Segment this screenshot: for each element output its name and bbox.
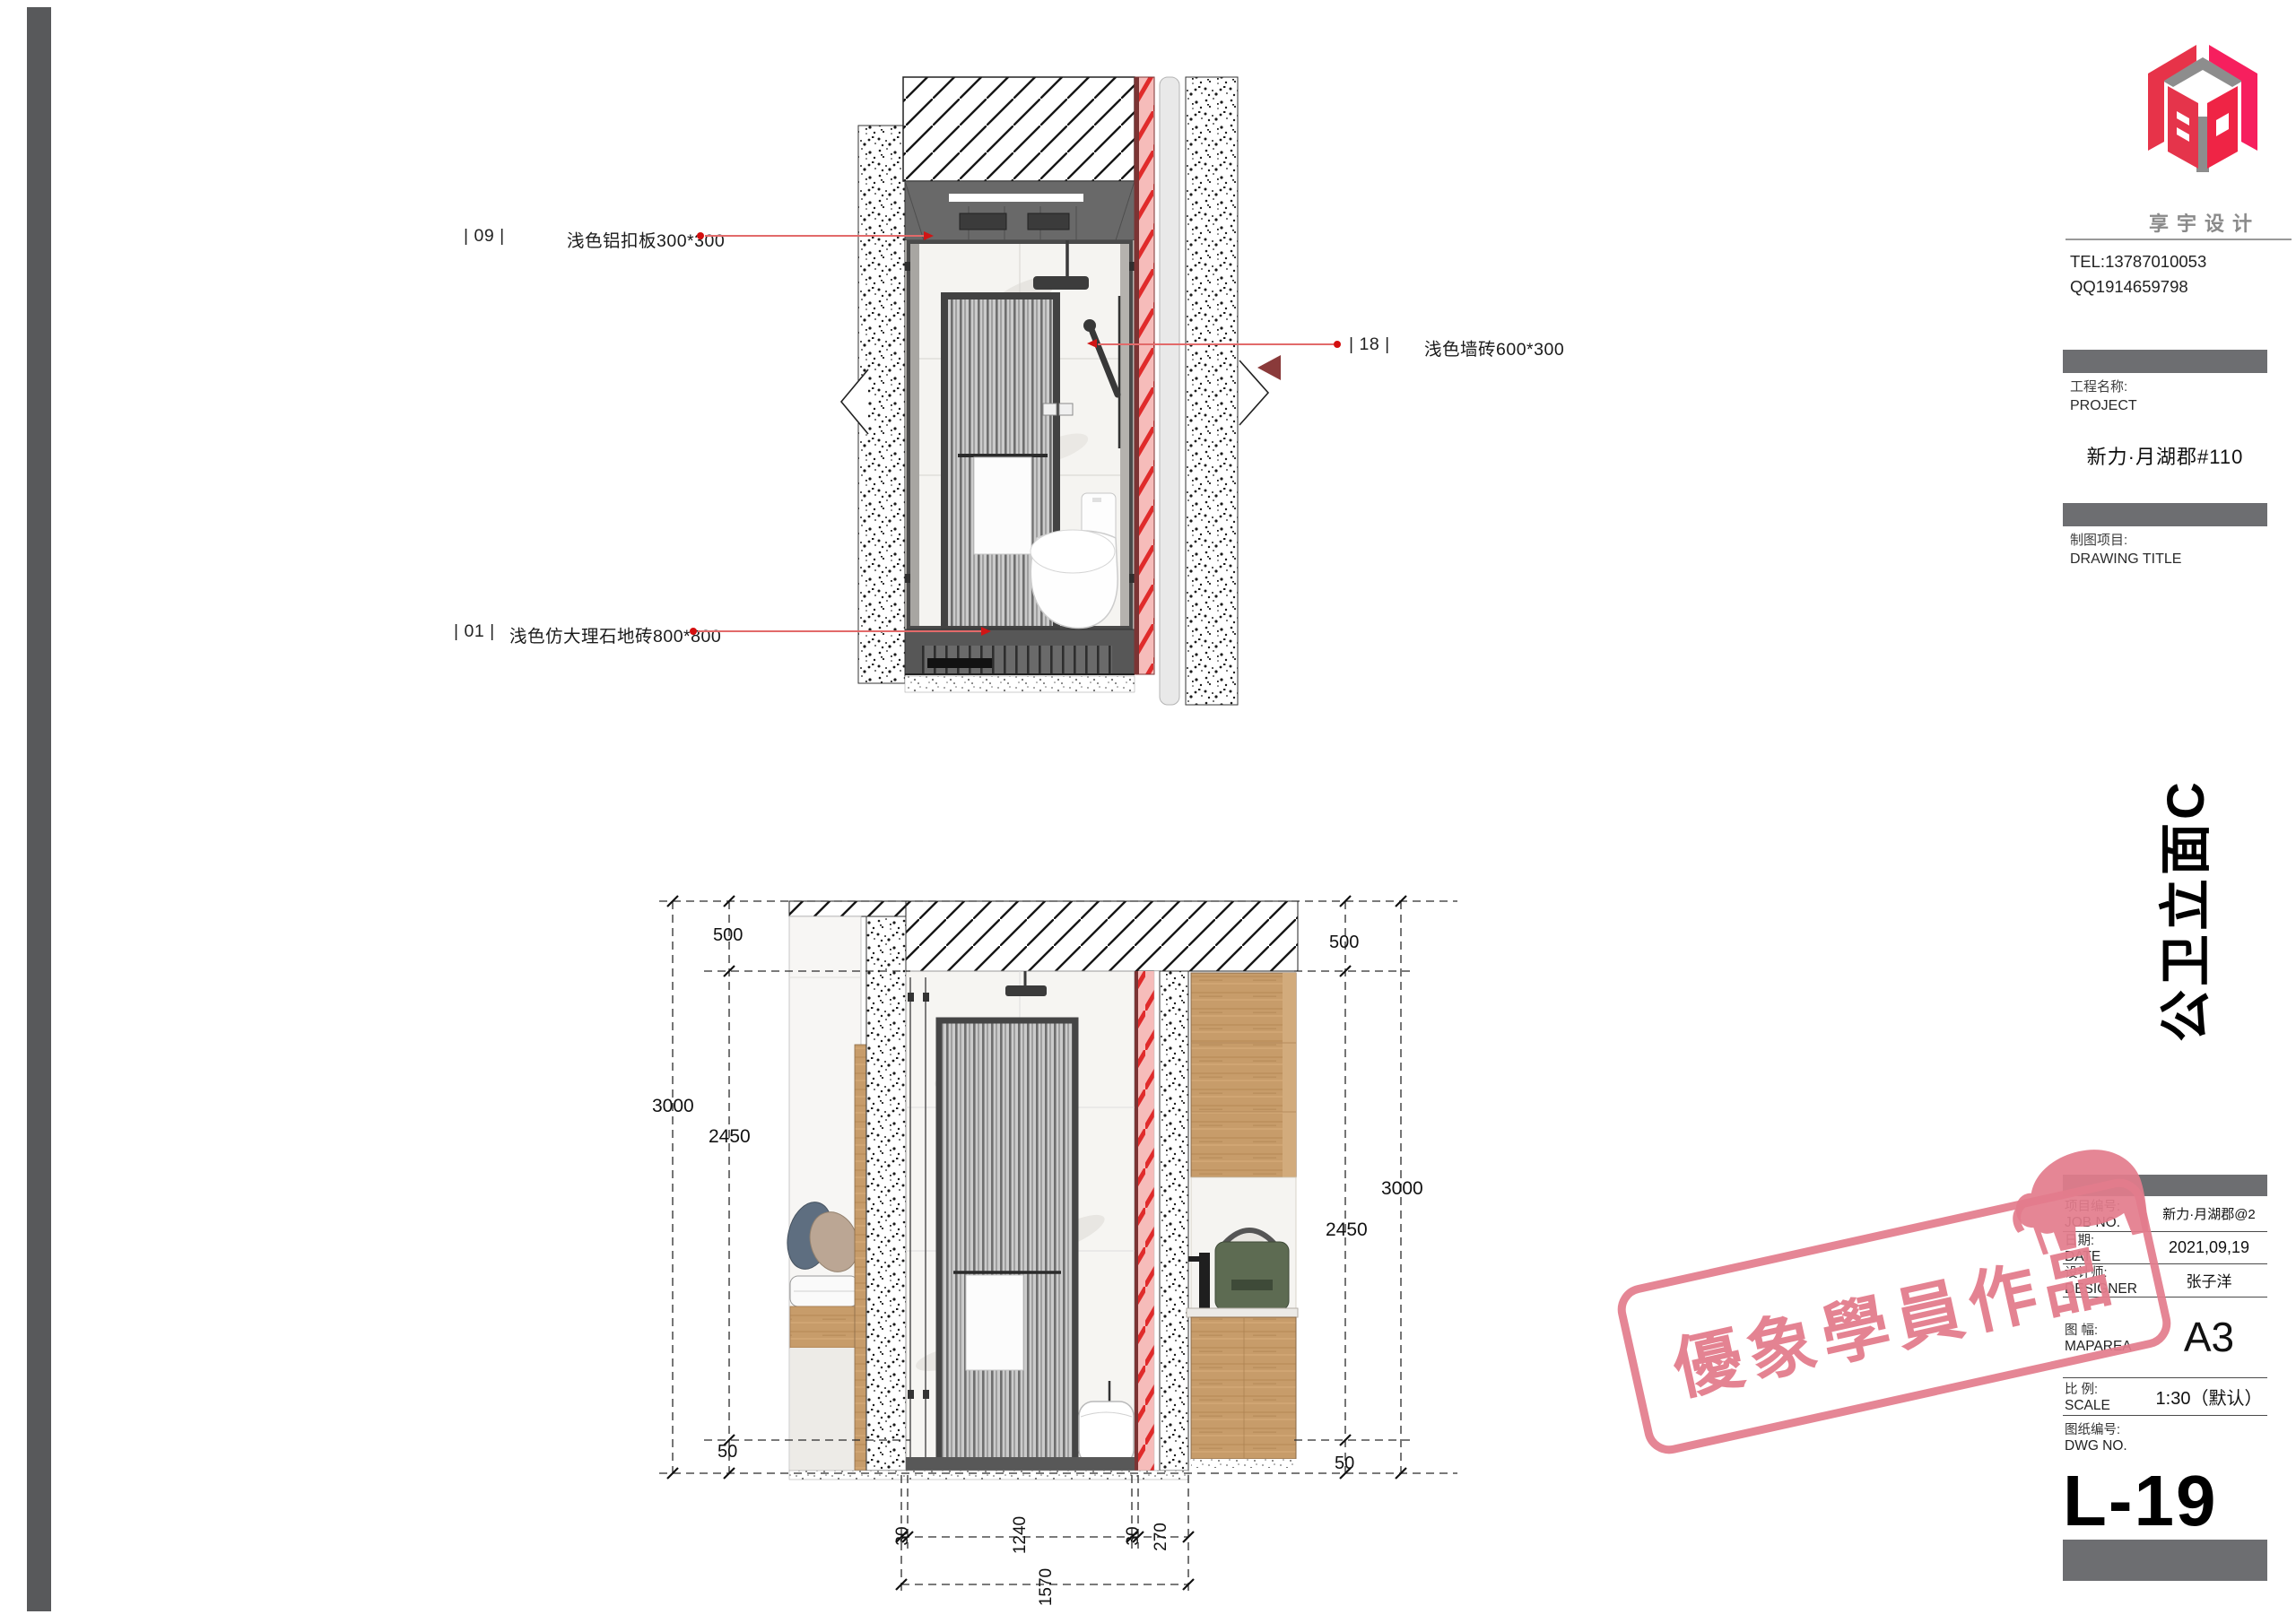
wall-switch — [1043, 404, 1057, 415]
leader-arrow — [1087, 339, 1097, 348]
dim-bottom-30b: 30 — [1124, 1526, 1144, 1545]
leader-line — [705, 235, 927, 237]
dim-bottom-270: 270 — [1152, 1523, 1171, 1551]
drawing-title-label: 制图项目: DRAWING TITLE — [2070, 532, 2181, 569]
bathtub — [1079, 1402, 1134, 1464]
project-label: 工程名称: PROJECT — [2070, 378, 2137, 416]
contact-tel: TEL:13787010053 — [2070, 249, 2206, 274]
dim-bottom-1570: 1570 — [1037, 1568, 1057, 1606]
leader-dot — [697, 232, 704, 239]
annotation-tag-09: | 09 | — [464, 226, 505, 247]
dim-right-3000: 3000 — [1381, 1178, 1423, 1200]
break-symbol-left — [841, 369, 868, 434]
drawing-number: L-19 — [2063, 1460, 2218, 1542]
annotation-tag-18: | 18 | — [1349, 334, 1390, 355]
leader-line — [698, 630, 985, 632]
rain-shower-head — [1005, 985, 1047, 996]
rain-shower-head — [1033, 276, 1089, 290]
lower-elevation-drawing — [650, 892, 1484, 1623]
scale-value: 1:30（默认） — [2151, 1384, 2267, 1410]
dim-left-500: 500 — [713, 925, 743, 946]
annotation-tag-01: | 01 | — [454, 621, 495, 642]
upper-elevation-drawing — [852, 72, 1274, 713]
counter-slab — [1187, 1308, 1298, 1317]
wall-switch — [1059, 404, 1073, 415]
drawing-sheet: | 09 | 浅色铝扣板300*300 | 18 | 浅色墙砖600*300 |… — [0, 0, 2296, 1623]
ceiling-vent — [1028, 213, 1069, 230]
brand-name: 享宇设计 — [2142, 208, 2267, 237]
bed-base — [790, 1306, 860, 1348]
leader-line — [1098, 343, 1334, 345]
table-row-dwgno: 图纸编号:DWG NO. — [2063, 1416, 2267, 1461]
upper-ceiling-panel — [905, 181, 1135, 240]
leader-arrow — [981, 627, 991, 636]
upper-cabinet — [1191, 973, 1296, 1177]
lower-shower-door — [939, 1020, 1075, 1463]
upper-pilaster — [1160, 77, 1179, 705]
elephant-icon — [1996, 1124, 2173, 1288]
annotation-label-18: 浅色墙砖600*300 — [1424, 334, 1564, 360]
bottom-bar — [2063, 1540, 2267, 1581]
dim-left-50: 50 — [717, 1442, 737, 1462]
dim-right-500: 500 — [1329, 933, 1359, 953]
section-bar-drawing — [2063, 503, 2267, 526]
project-name: 新力·月湖郡#110 — [2063, 441, 2267, 470]
table-row-scale: 比 例:SCALE 1:30（默认） — [2063, 1378, 2267, 1416]
dim-bottom-1240: 1240 — [1011, 1516, 1031, 1554]
upper-ceiling-hatch — [903, 77, 1135, 181]
lower-cabinet — [1191, 1317, 1296, 1459]
dim-right-50: 50 — [1335, 1454, 1354, 1474]
lower-right-wall-stipple — [1160, 971, 1188, 1471]
leader-dot — [690, 628, 697, 635]
upper-right-wall-stipple — [1186, 77, 1238, 705]
lower-towel — [966, 1275, 1023, 1370]
lower-left-wall-stipple — [866, 916, 906, 1471]
lower-hatch-slab — [906, 901, 1298, 971]
dim-right-2450: 2450 — [1326, 1219, 1368, 1241]
dim-left-2450: 2450 — [709, 1126, 751, 1148]
leader-dot — [1334, 341, 1341, 348]
dim-left-3000: 3000 — [652, 1096, 694, 1117]
jobno-value: 新力·月湖郡@2 — [2151, 1204, 2267, 1223]
leader-arrow — [924, 231, 934, 240]
drawing-title-vertical: 公卫立面C — [2144, 778, 2219, 1042]
ceiling-vent — [960, 213, 1006, 230]
green-appliance — [1215, 1242, 1289, 1310]
annotation-label-01: 浅色仿大理石地砖800*800 — [509, 621, 721, 647]
designer-value: 张子洋 — [2151, 1269, 2267, 1291]
contact-qq: QQ1914659798 — [2070, 274, 2188, 299]
lower-floor — [906, 1457, 1135, 1471]
brand-logo — [2144, 34, 2262, 204]
upper-towel — [974, 457, 1031, 554]
lower-hatch-bedroom — [789, 901, 906, 916]
sheet-edge-bar — [27, 7, 51, 1611]
section-bar-project — [2063, 350, 2267, 373]
headboard-panel — [855, 1045, 866, 1471]
dim-bottom-30a: 30 — [893, 1526, 913, 1545]
break-symbol-red — [1257, 355, 1281, 380]
titleblock-divider — [2066, 239, 2292, 240]
